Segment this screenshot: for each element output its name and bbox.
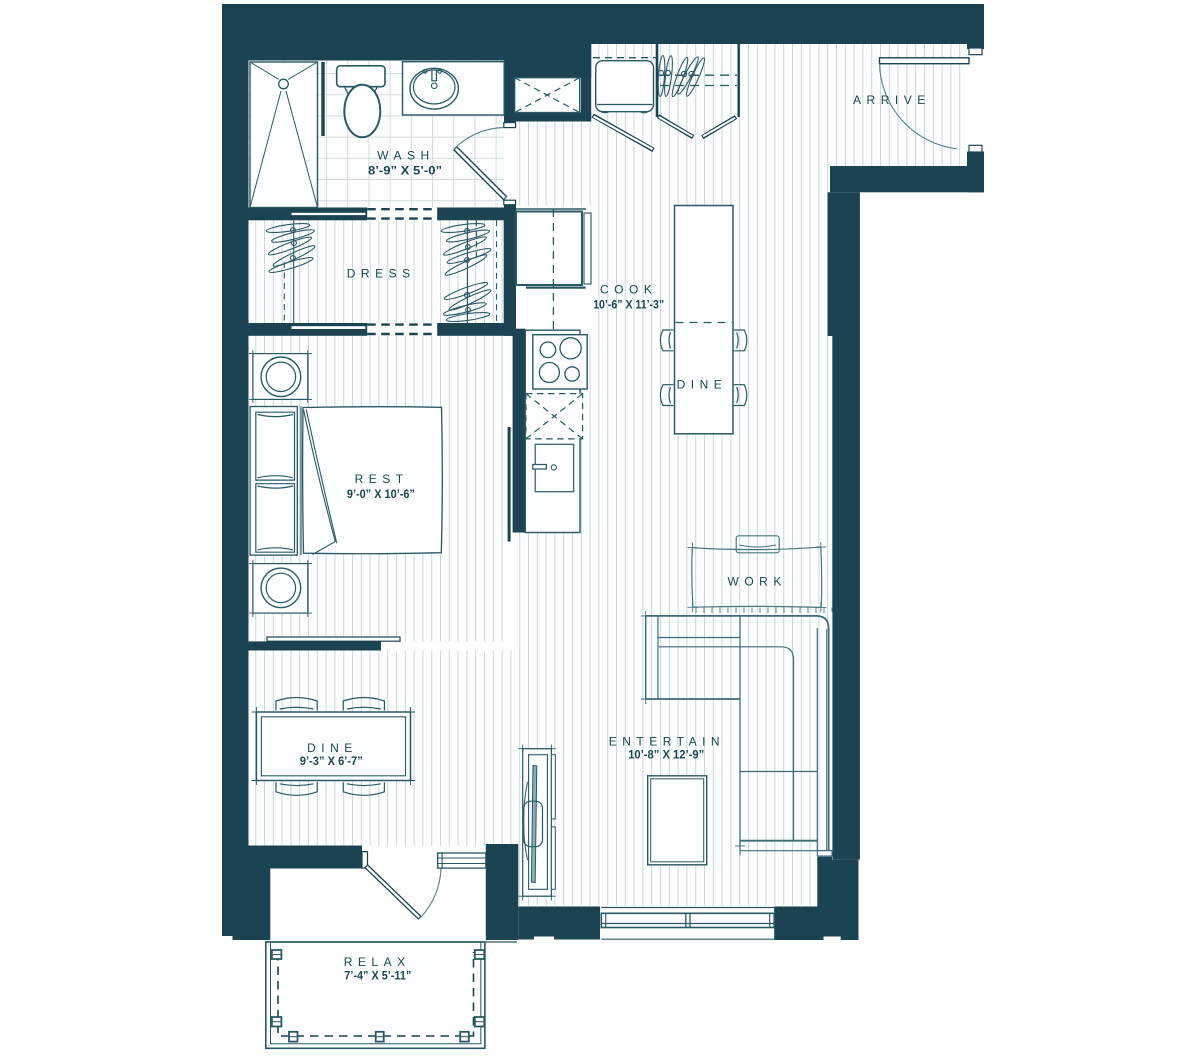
- svg-text:10’-6” X 11’-3”: 10’-6” X 11’-3”: [593, 298, 664, 312]
- svg-text:COOK: COOK: [600, 283, 657, 297]
- svg-text:9’-3” X 6’-7”: 9’-3” X 6’-7”: [300, 754, 363, 768]
- svg-text:10’-8” X 12’-9”: 10’-8” X 12’-9”: [628, 747, 704, 761]
- svg-text:DINE: DINE: [677, 378, 728, 392]
- svg-text:ARRIVE: ARRIVE: [853, 93, 931, 107]
- svg-text:7’-4” X 5’-11”: 7’-4” X 5’-11”: [344, 969, 411, 983]
- svg-text:RELAX: RELAX: [344, 955, 411, 969]
- svg-text:DRESS: DRESS: [347, 267, 416, 281]
- svg-text:ENTERTAIN: ENTERTAIN: [609, 734, 725, 748]
- svg-text:DINE: DINE: [307, 741, 358, 755]
- svg-text:9’-0” X 10’-6”: 9’-0” X 10’-6”: [347, 487, 415, 501]
- svg-text:REST: REST: [355, 472, 409, 486]
- svg-text:WASH: WASH: [377, 149, 435, 163]
- svg-text:WORK: WORK: [728, 575, 787, 589]
- svg-text:8’-9” X 5’-0”: 8’-9” X 5’-0”: [368, 164, 442, 178]
